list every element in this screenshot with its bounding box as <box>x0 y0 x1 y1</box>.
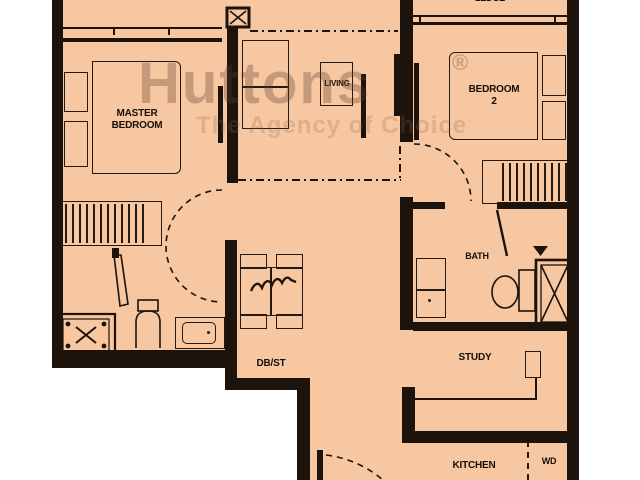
watermark-registered-icon: ® <box>452 50 468 76</box>
room-label-wd: WD <box>531 456 567 466</box>
room-label-ledge: LEDGE <box>413 0 567 3</box>
shower-dot <box>66 322 69 325</box>
toilet-master <box>136 311 160 348</box>
door-arc-kitchen <box>326 455 383 480</box>
room-label-dbst: DB/ST <box>239 358 303 369</box>
shower-head-icon <box>533 246 548 256</box>
door-arc-master-bath <box>166 246 222 302</box>
door-arc-bedroom2 <box>414 144 471 201</box>
door-leaf-bath <box>497 210 507 256</box>
table-scribble <box>251 278 296 291</box>
room-label-study: STUDY <box>453 352 497 363</box>
room-label-kitchen: KITCHEN <box>438 460 510 471</box>
floor-plan: LEDGE MASTER BEDROOM LIVING BEDROOM 2 BA… <box>0 0 640 480</box>
toilet-bath-cistern <box>519 270 535 311</box>
room-label-bedroom2: BEDROOM 2 <box>452 84 536 108</box>
toilet-bath <box>492 276 518 308</box>
door-arc-master-bedroom <box>166 190 222 246</box>
watermark-brand: Huttons <box>138 50 371 117</box>
shower-dot <box>102 322 105 325</box>
shower-dot <box>66 344 69 347</box>
door-leaf-master-bath <box>114 255 128 306</box>
watermark-tagline: The Agency of Choice <box>196 112 467 140</box>
shower-dot <box>102 344 105 347</box>
study-counter <box>415 377 536 399</box>
room-label-bath: BATH <box>455 251 499 261</box>
toilet-master-cistern <box>138 300 158 311</box>
